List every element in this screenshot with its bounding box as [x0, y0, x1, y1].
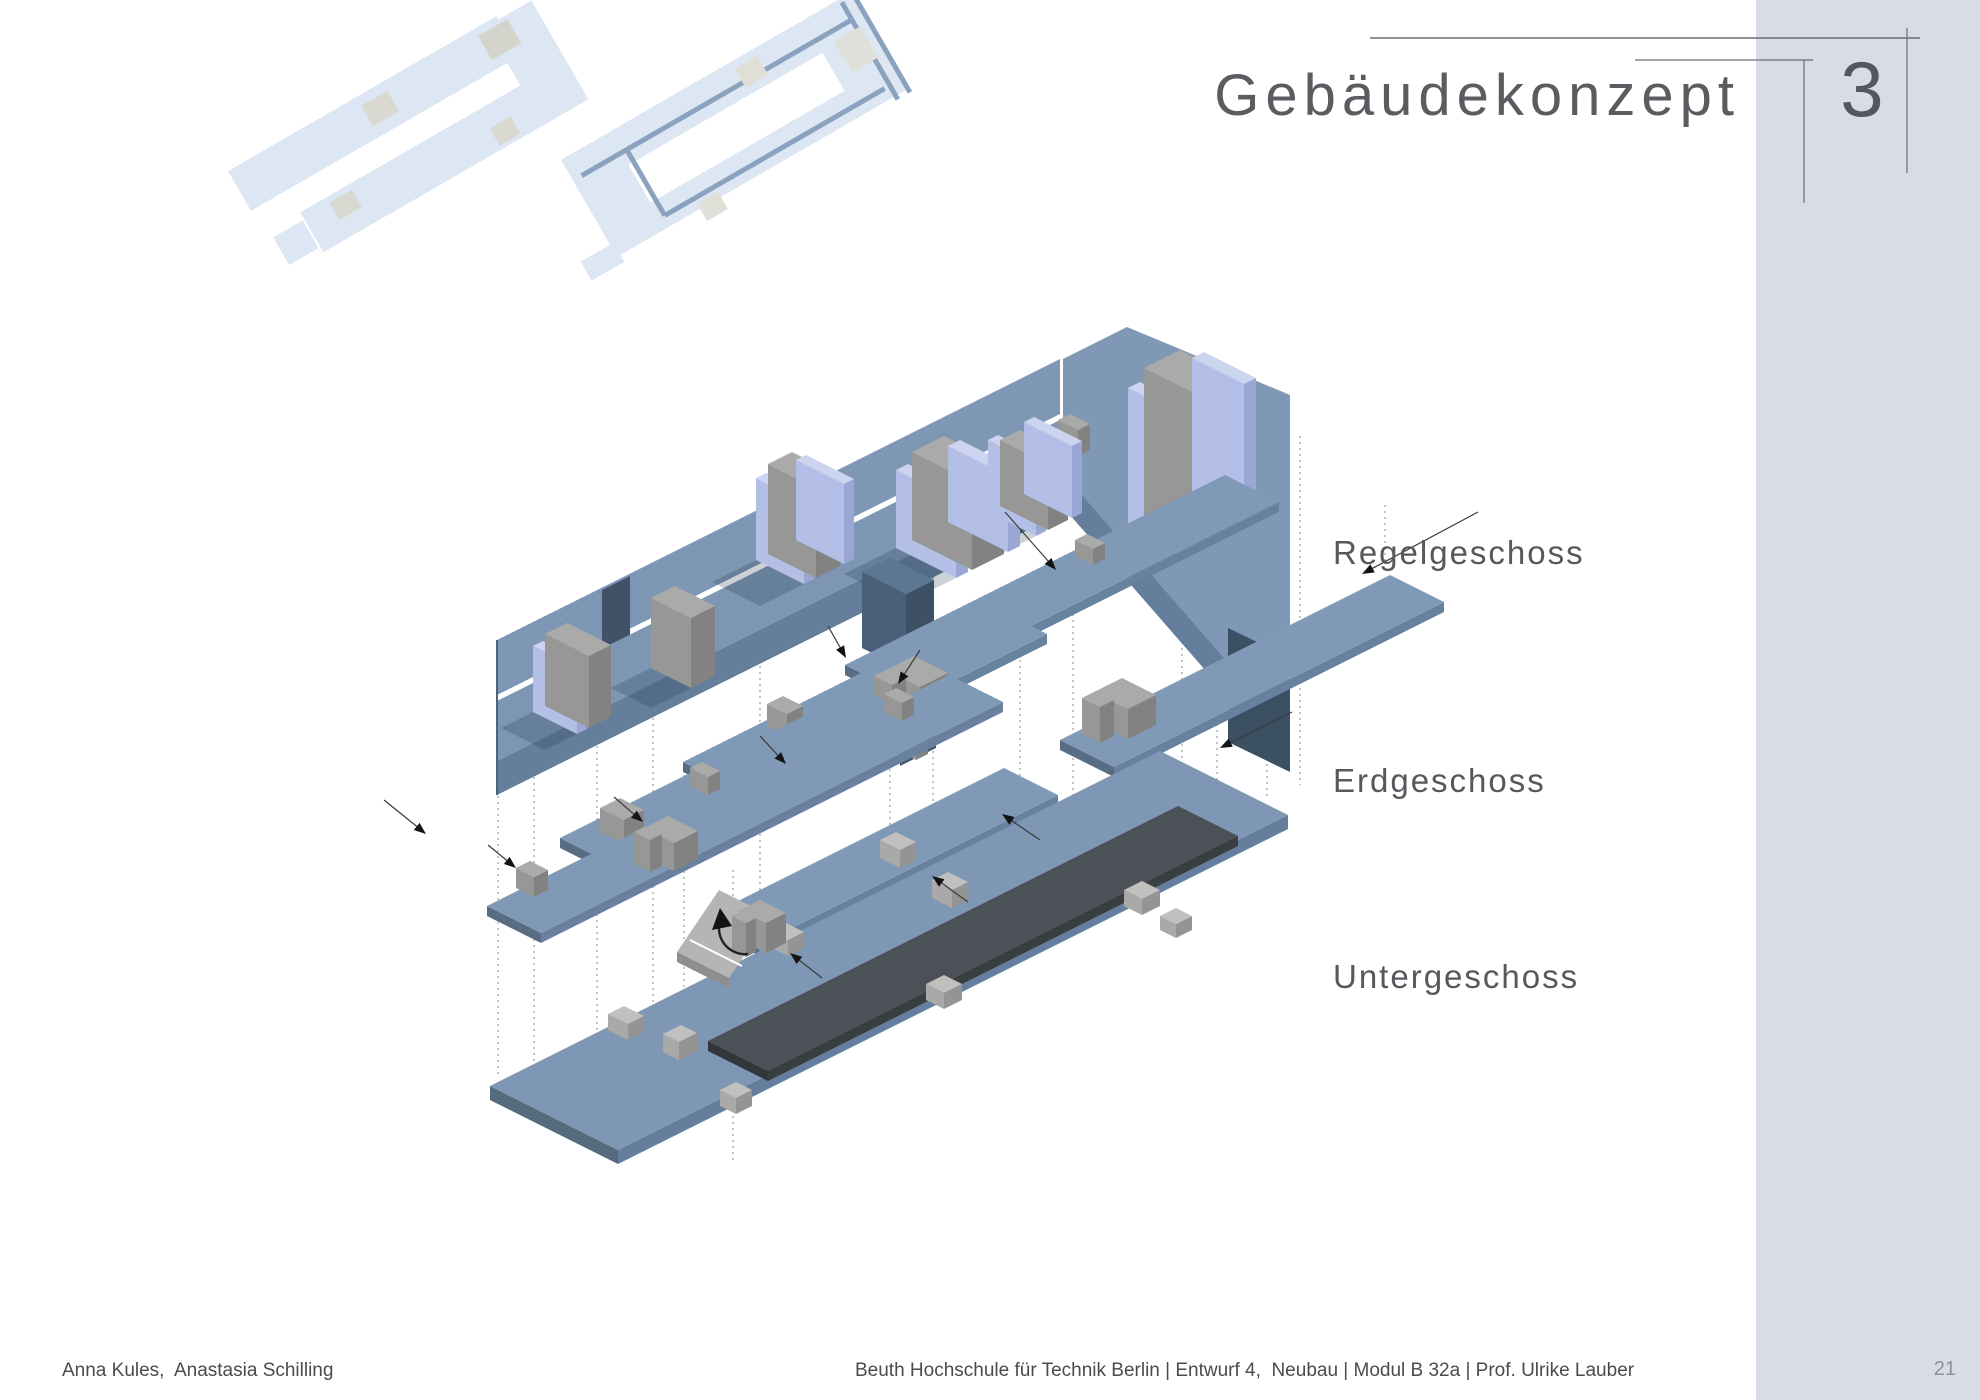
upper-floor-plan-icon [228, 0, 588, 273]
footer-page-number: 21 [1934, 1358, 1956, 1381]
footer-institution: Beuth Hochschule für Technik Berlin | En… [855, 1360, 1634, 1382]
slide-graphics [0, 0, 1980, 1400]
slide-page: Gebäudekonzept 3 Regelgeschoss Erdgescho… [0, 0, 1980, 1400]
label-untergeschoss: Untergeschoss [1333, 958, 1579, 996]
section-number-badge: 3 [1818, 44, 1906, 135]
label-erdgeschoss: Erdgeschoss [1333, 762, 1546, 800]
footer-authors: Anna Kules, Anastasia Schilling [62, 1360, 333, 1382]
page-title: Gebäudekonzept [1214, 62, 1740, 129]
label-regelgeschoss: Regelgeschoss [1333, 534, 1585, 572]
exploded-axonometric-diagram [384, 327, 1478, 1164]
ground-floor-plan-icon [532, 0, 915, 286]
